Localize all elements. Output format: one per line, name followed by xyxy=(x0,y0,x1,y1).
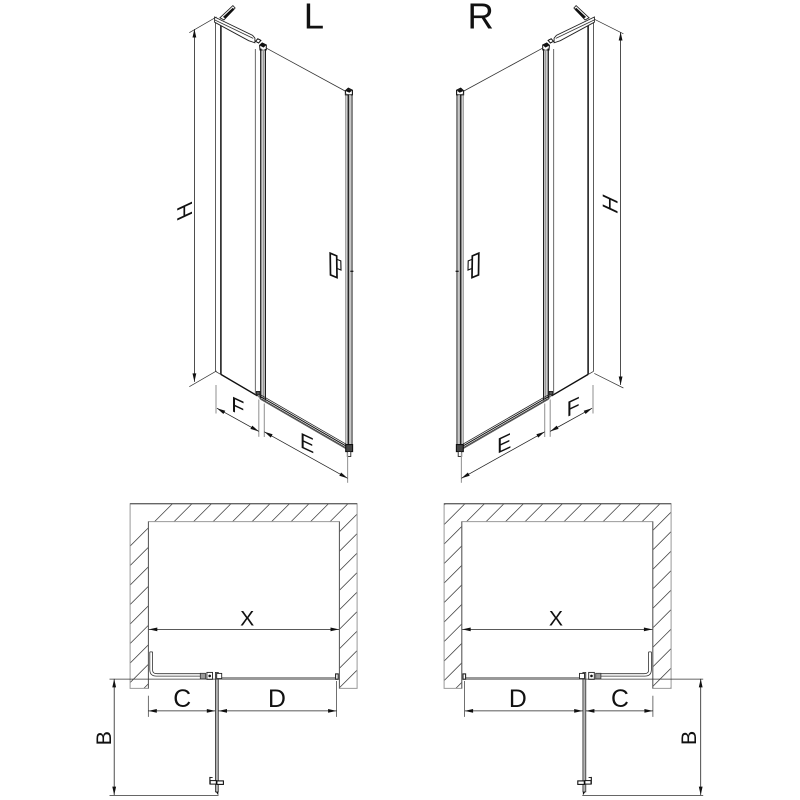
svg-text:B: B xyxy=(677,731,701,745)
svg-text:X: X xyxy=(549,607,563,630)
svg-text:C: C xyxy=(173,686,191,713)
svg-text:D: D xyxy=(268,686,286,713)
svg-text:R: R xyxy=(468,0,494,37)
svg-text:L: L xyxy=(304,0,324,37)
svg-text:C: C xyxy=(611,686,629,713)
svg-text:X: X xyxy=(240,607,254,630)
svg-text:B: B xyxy=(92,731,116,745)
svg-text:D: D xyxy=(509,686,527,713)
